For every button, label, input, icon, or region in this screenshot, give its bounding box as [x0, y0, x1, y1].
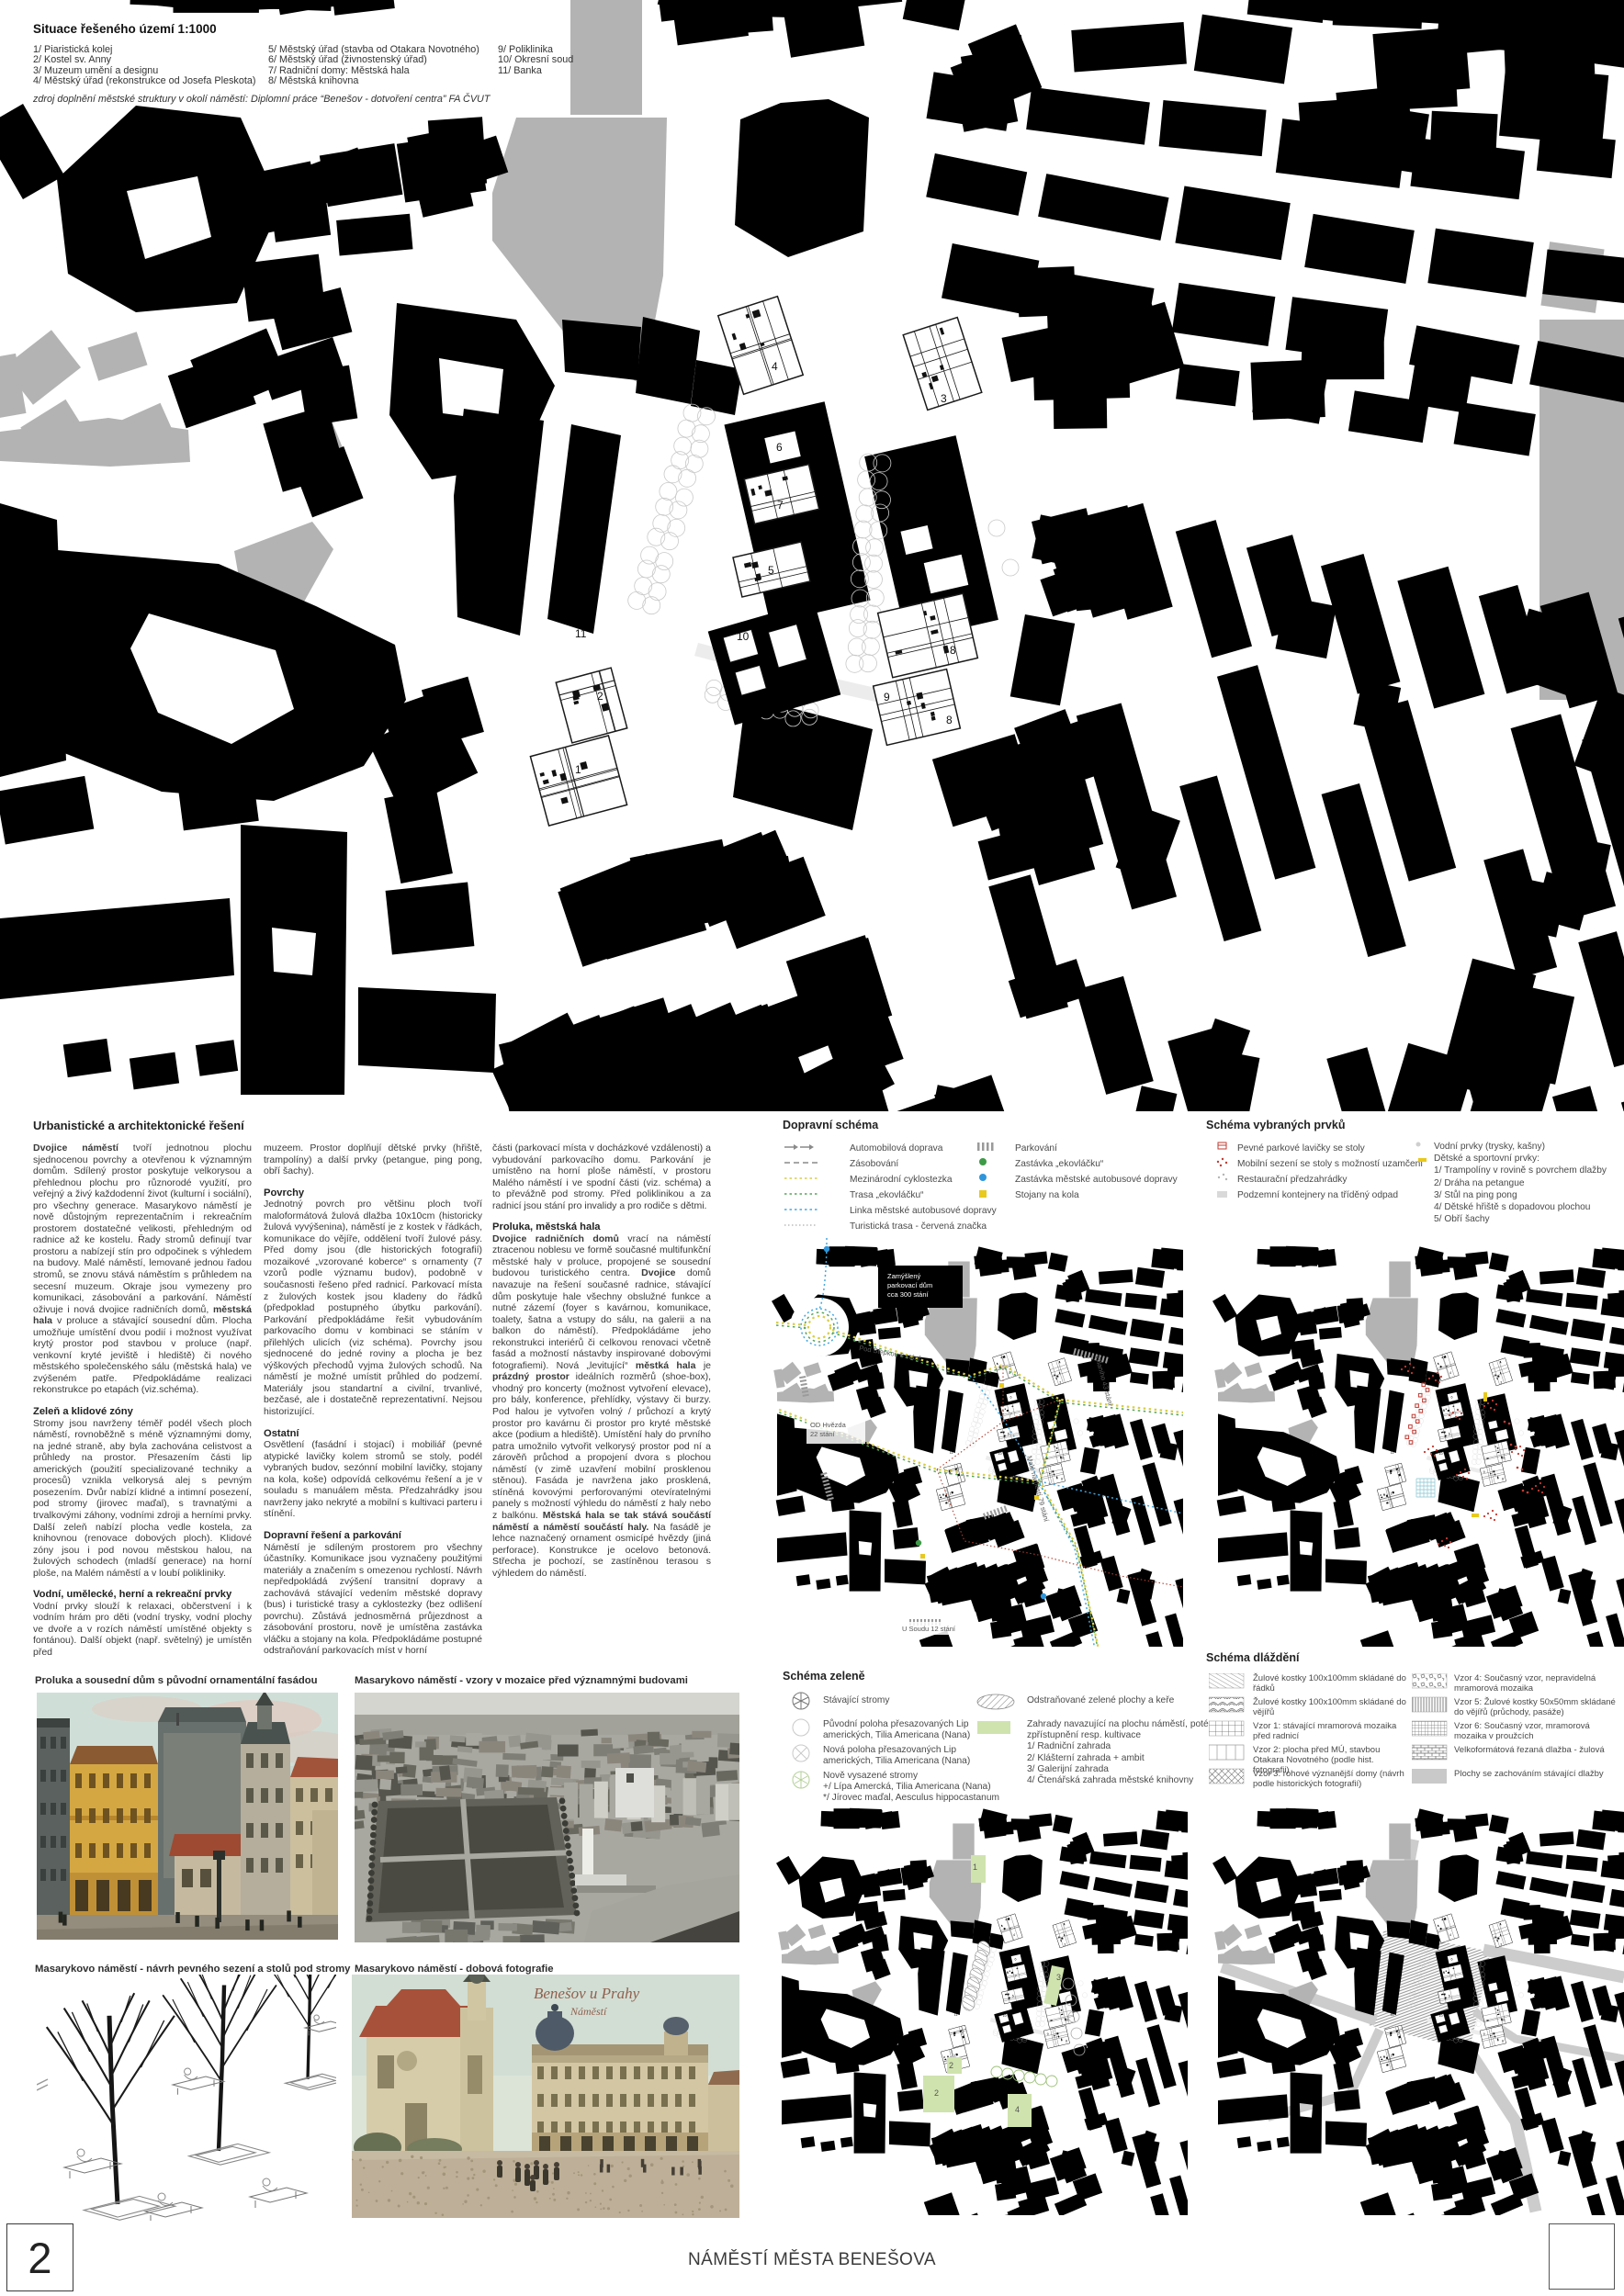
svg-text:Benešov u Prahy: Benešov u Prahy [534, 1985, 640, 2002]
svg-text:OD Hvězda: OD Hvězda [810, 1421, 847, 1429]
svg-text:5: 5 [768, 564, 774, 577]
svg-text:2: 2 [934, 2088, 939, 2098]
svg-text:1: 1 [973, 1863, 977, 1872]
svg-text:22 stání: 22 stání [810, 1430, 836, 1438]
svg-text:10: 10 [737, 630, 750, 643]
svg-text:2: 2 [949, 2061, 953, 2070]
svg-text:4: 4 [772, 360, 778, 373]
svg-text:cca 300 stání: cca 300 stání [887, 1290, 930, 1299]
svg-text:3: 3 [1056, 1973, 1061, 1982]
svg-text:2: 2 [597, 690, 603, 703]
svg-text:U Soudu 12 stání: U Soudu 12 stání [902, 1625, 956, 1633]
svg-text:6: 6 [776, 441, 783, 454]
svg-text:8: 8 [950, 644, 956, 657]
svg-text:Náměstí: Náměstí [570, 2005, 608, 2018]
svg-text:7: 7 [777, 499, 784, 512]
svg-text:3: 3 [941, 392, 947, 405]
svg-text:1: 1 [575, 763, 581, 776]
svg-text:4: 4 [1015, 2105, 1020, 2114]
svg-text:11: 11 [575, 627, 587, 640]
svg-text:Zamýšlený: Zamýšlený [887, 1272, 921, 1280]
svg-text:8: 8 [946, 714, 953, 726]
svg-text:9: 9 [884, 691, 890, 703]
svg-text:parkovací dům: parkovací dům [887, 1281, 932, 1289]
